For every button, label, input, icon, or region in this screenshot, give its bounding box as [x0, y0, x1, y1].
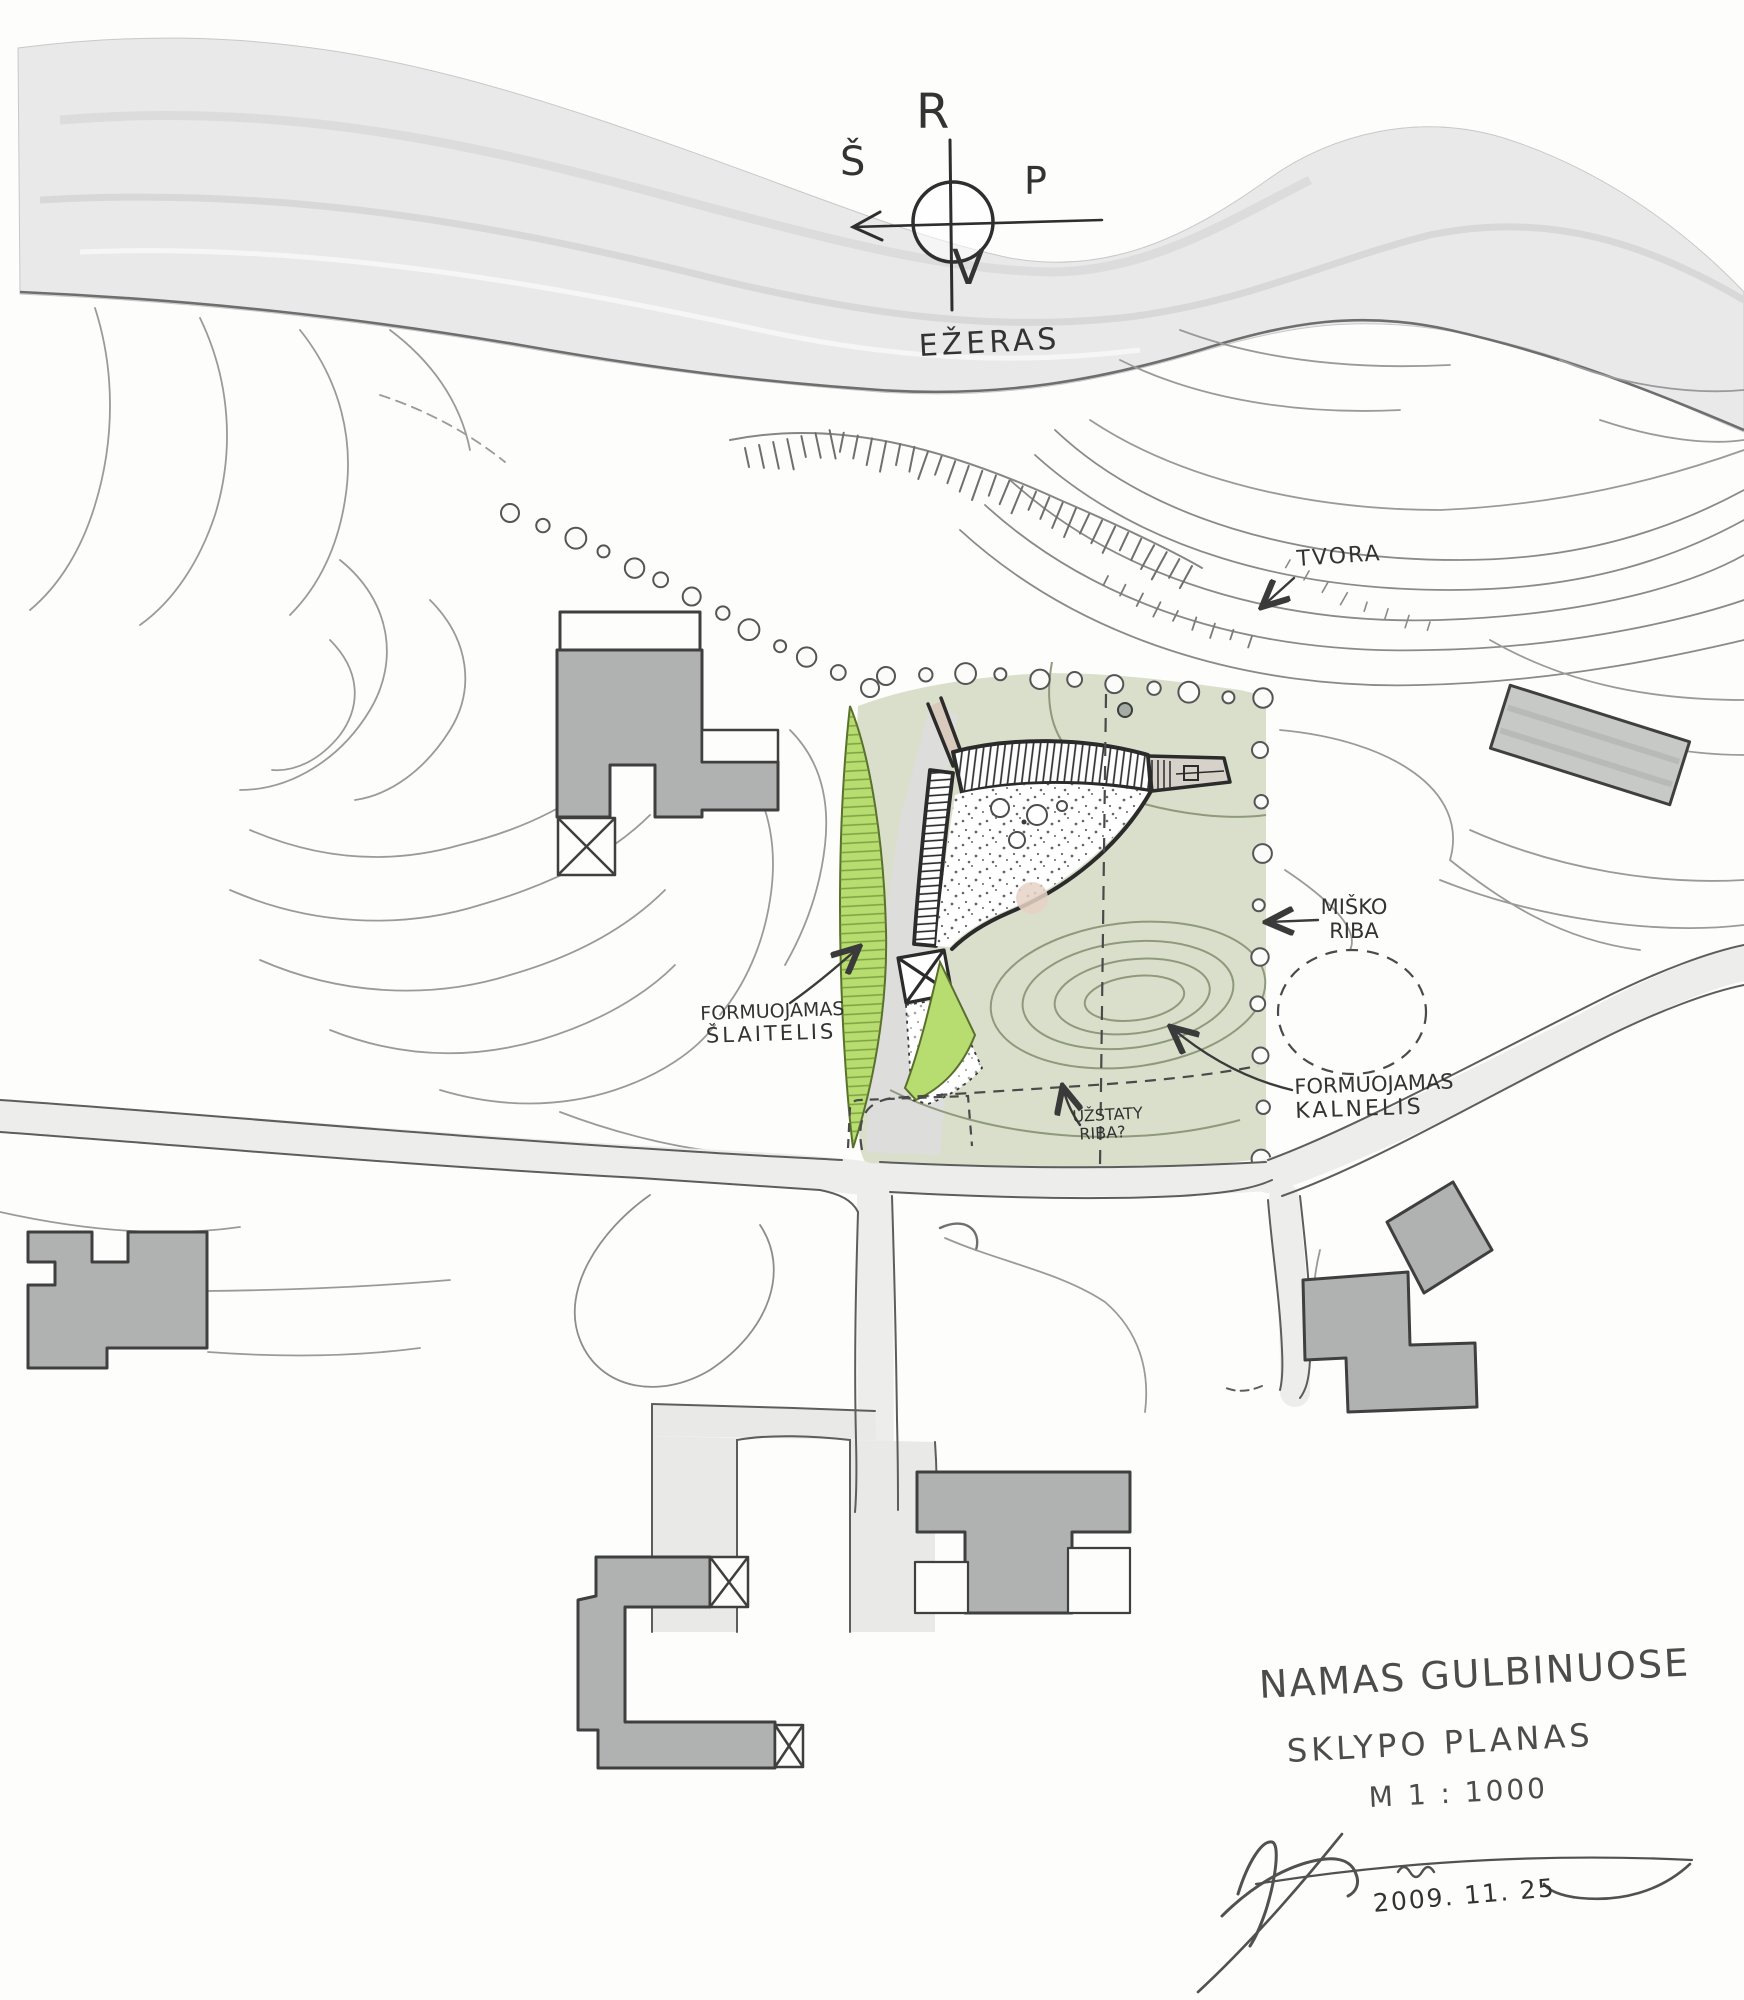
signature [1198, 1834, 1692, 1992]
compass-label-right: P [1024, 160, 1047, 203]
forest-edge-arrow [1268, 920, 1318, 922]
site-plan-sketch: R P V Š EŽERAS TVORA MIŠKO RIBA FORMUOJA… [0, 0, 1744, 2000]
building-limit-label: UŽSTATY RIBA? [1072, 1104, 1144, 1143]
lake-label: EŽERAS [918, 323, 1061, 364]
fence-arrow [1263, 578, 1294, 606]
tan-marker-circle [1016, 882, 1048, 914]
forest-edge-label: MIŠKO RIBA [1318, 896, 1390, 943]
formed-hill-label: FORMUOJAMAS KALNELIS [1294, 1070, 1455, 1124]
compass-label-top: R [916, 86, 949, 140]
lake-band [18, 38, 1744, 432]
compass-label-bottom: V [952, 242, 985, 296]
site-corner-marker [1118, 703, 1132, 717]
dashed-circle [1278, 950, 1426, 1074]
plan-drawing [0, 0, 1744, 2000]
compass-label-left: Š [840, 140, 865, 185]
formed-slope-label: FORMUOJAMAS ŠLAITELIS [700, 999, 841, 1049]
